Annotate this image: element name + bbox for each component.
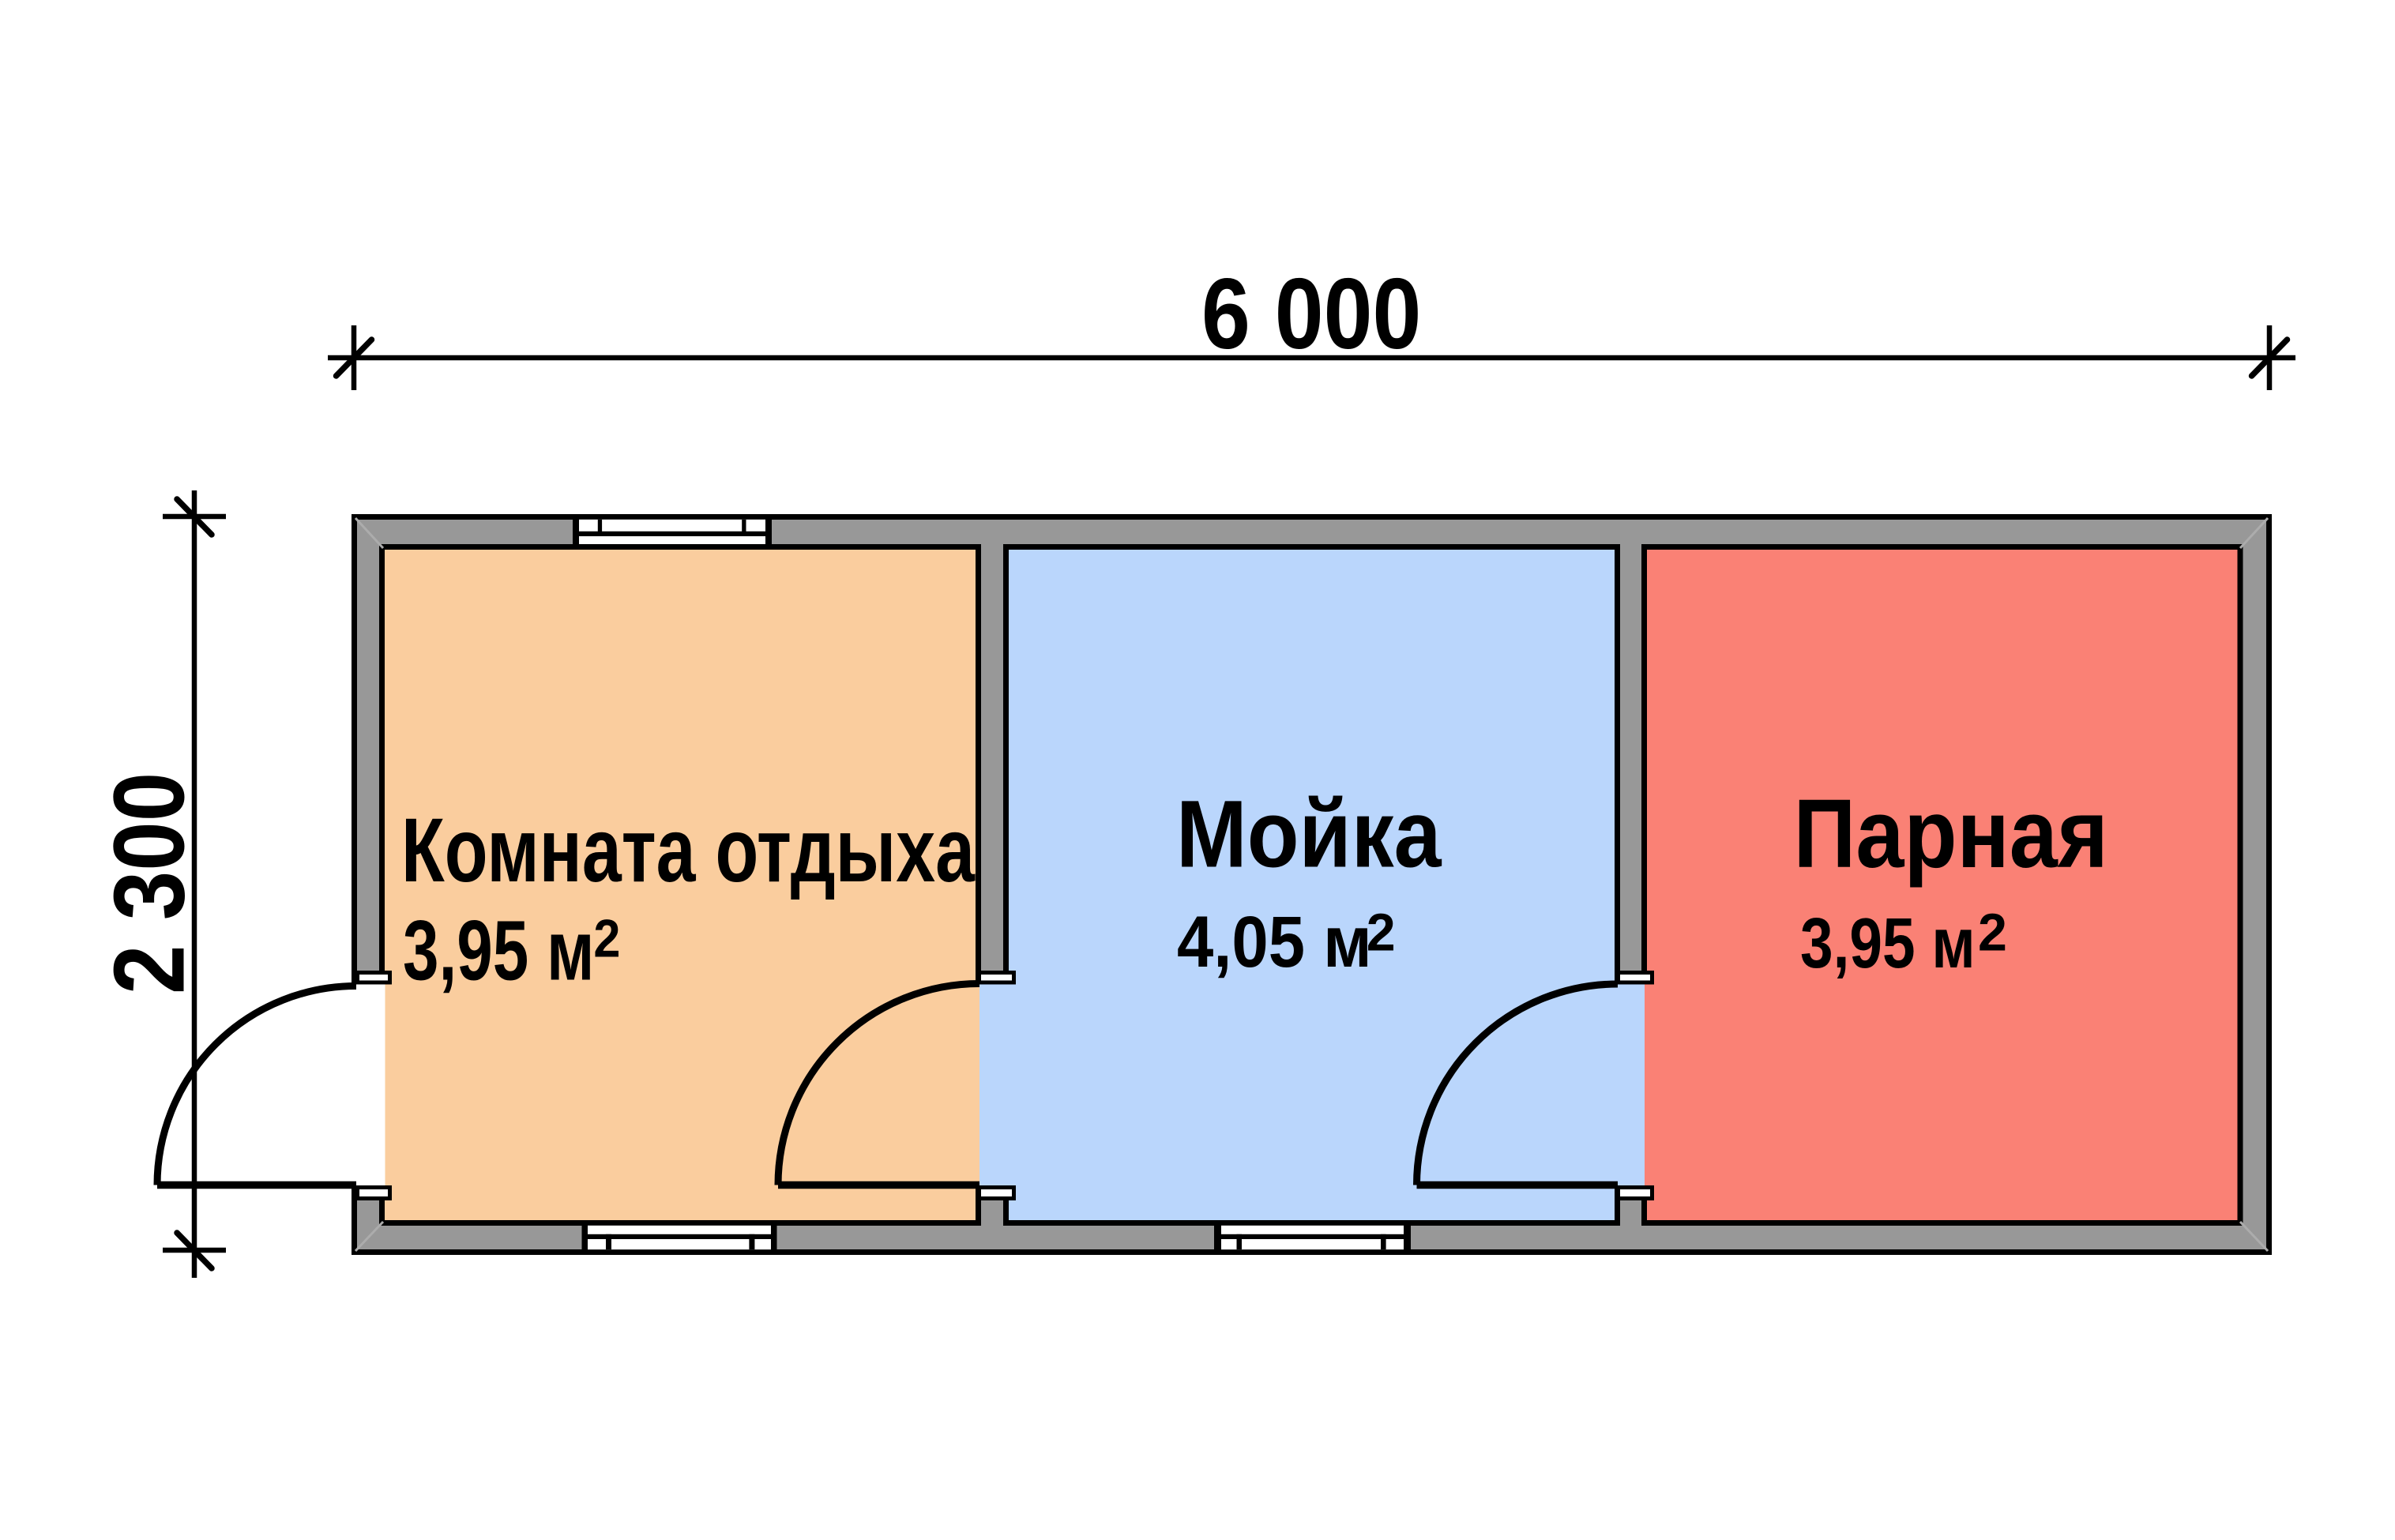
svg-text:2: 2: [1978, 903, 2007, 962]
svg-text:2 300: 2 300: [93, 772, 205, 994]
svg-text:2: 2: [593, 907, 620, 968]
svg-text:Парная: Парная: [1794, 779, 2108, 888]
svg-text:Мойка: Мойка: [1176, 782, 1442, 888]
svg-text:4,05 м: 4,05 м: [1177, 901, 1372, 982]
svg-text:6 000: 6 000: [1201, 258, 1421, 370]
svg-text:3,95 м: 3,95 м: [403, 904, 594, 998]
svg-text:2: 2: [1367, 903, 1396, 962]
svg-text:3,95 м: 3,95 м: [1800, 903, 1976, 982]
svg-text:Комната отдыха: Комната отдыха: [401, 799, 976, 900]
